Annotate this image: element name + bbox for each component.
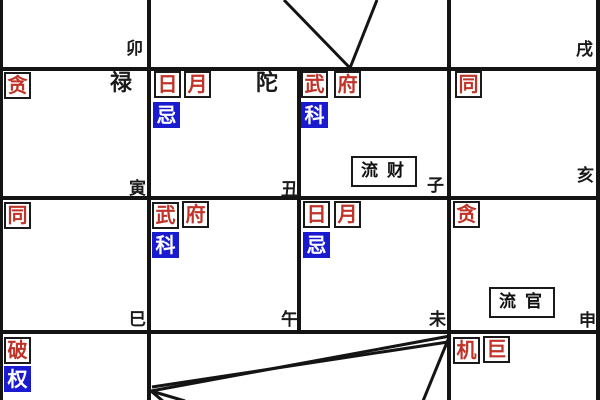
aux-star: 禄	[110, 71, 132, 97]
star-box: 巨	[483, 336, 510, 363]
branch-label: 卯	[126, 40, 143, 58]
palace-yin: 贪 禄 寅	[3, 71, 147, 196]
aux-star: 陀	[256, 71, 278, 97]
star-box: 同	[4, 202, 31, 229]
palace-wu: 武 府 科 午	[151, 200, 297, 330]
palace-chou: 日 月 忌 陀 丑	[151, 71, 297, 196]
transform-badge: 忌	[153, 102, 180, 128]
palace-mao: 卯	[3, 0, 147, 67]
ziwei-chart: 卯 戌 贪 禄 寅 日 月 忌 陀 丑 武 府 科 流财 子 同 亥 同 巳 武…	[0, 0, 600, 400]
star-box: 武	[152, 202, 179, 229]
star-box: 府	[182, 201, 209, 228]
palace-xu: 戌	[451, 0, 596, 67]
star-box: 武	[301, 71, 328, 98]
branch-label: 未	[429, 311, 446, 329]
star-box: 贪	[4, 72, 31, 99]
transform-badge: 权	[4, 366, 31, 392]
branch-label: 子	[427, 177, 444, 195]
star-box: 日	[154, 71, 181, 98]
palace-zi: 武 府 科 流财 子	[301, 71, 447, 196]
branch-label: 丑	[281, 181, 298, 199]
star-box: 破	[4, 337, 31, 364]
flow-badge: 流财	[351, 156, 417, 187]
branch-label: 戌	[576, 41, 593, 59]
star-box: 月	[334, 201, 361, 228]
palace-wei: 日 月 忌 未	[301, 200, 447, 330]
star-box: 机	[453, 337, 480, 364]
palace-shen: 贪 流官 申	[451, 200, 596, 330]
transform-badge: 忌	[303, 232, 330, 258]
flow-badge: 流官	[489, 287, 555, 318]
branch-label: 亥	[577, 167, 594, 185]
flying-line	[423, 335, 450, 400]
star-box: 同	[455, 71, 482, 98]
branch-label: 午	[281, 311, 298, 329]
star-box: 府	[334, 71, 361, 98]
star-box: 日	[303, 201, 330, 228]
flying-line	[151, 391, 185, 400]
star-box: 贪	[453, 201, 480, 228]
flying-line	[284, 0, 350, 68]
transform-badge: 科	[152, 232, 179, 258]
palace-r4c1: 破 权	[3, 334, 147, 400]
branch-label: 寅	[129, 180, 146, 198]
palace-r4c4: 机 巨	[451, 334, 596, 400]
flying-line	[350, 0, 377, 68]
star-box: 月	[184, 71, 211, 98]
flying-line	[151, 391, 164, 400]
transform-badge: 科	[301, 102, 328, 128]
grid-line	[596, 0, 600, 400]
flying-line	[152, 342, 448, 387]
flying-line	[151, 336, 450, 391]
branch-label: 巳	[129, 311, 146, 329]
palace-si: 同 巳	[3, 200, 147, 330]
palace-hai: 同 亥	[451, 71, 596, 196]
branch-label: 申	[579, 312, 596, 330]
